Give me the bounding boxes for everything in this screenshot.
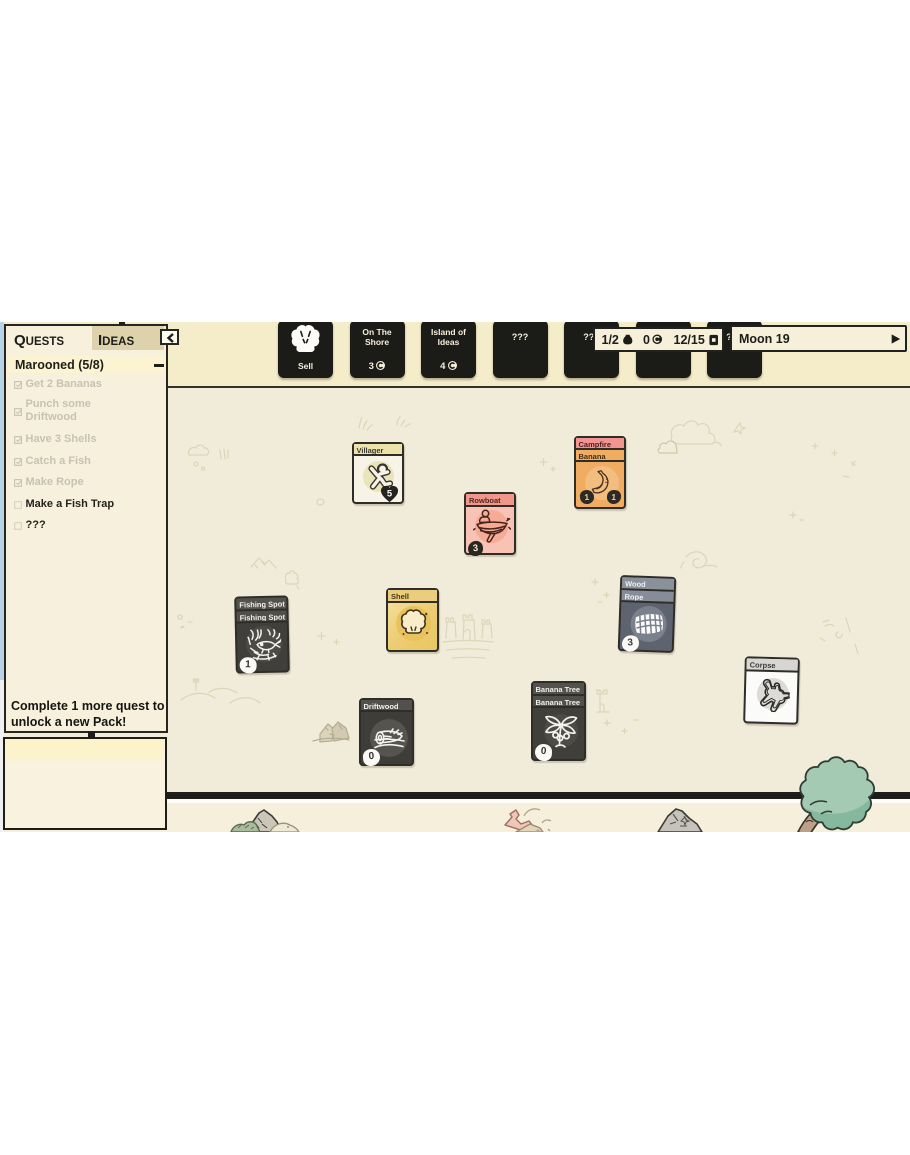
svg-text:5: 5 — [386, 487, 391, 498]
